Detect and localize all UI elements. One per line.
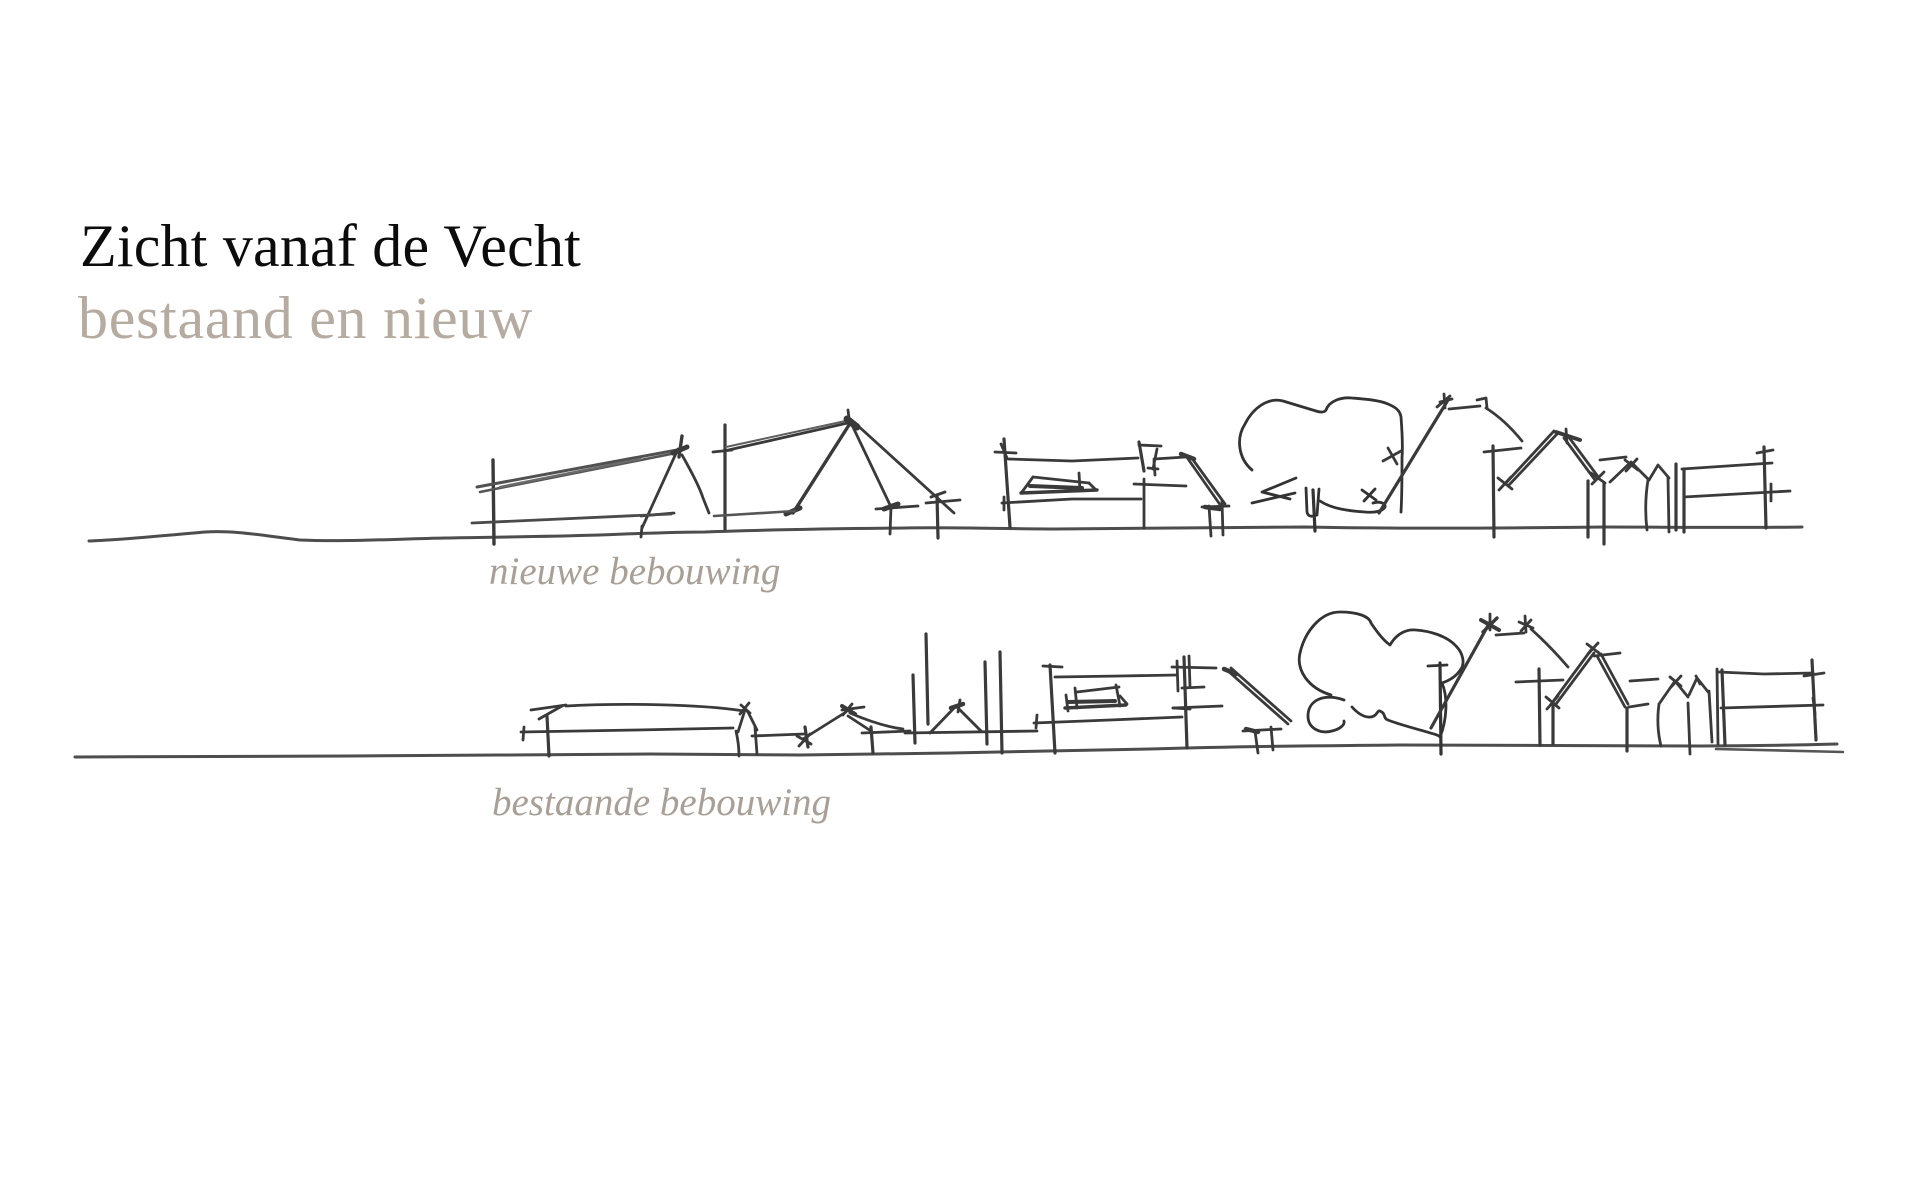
svg-text:bestaande bebouwing: bestaande bebouwing: [492, 781, 831, 824]
svg-text:nieuwe bebouwing: nieuwe bebouwing: [489, 550, 780, 593]
